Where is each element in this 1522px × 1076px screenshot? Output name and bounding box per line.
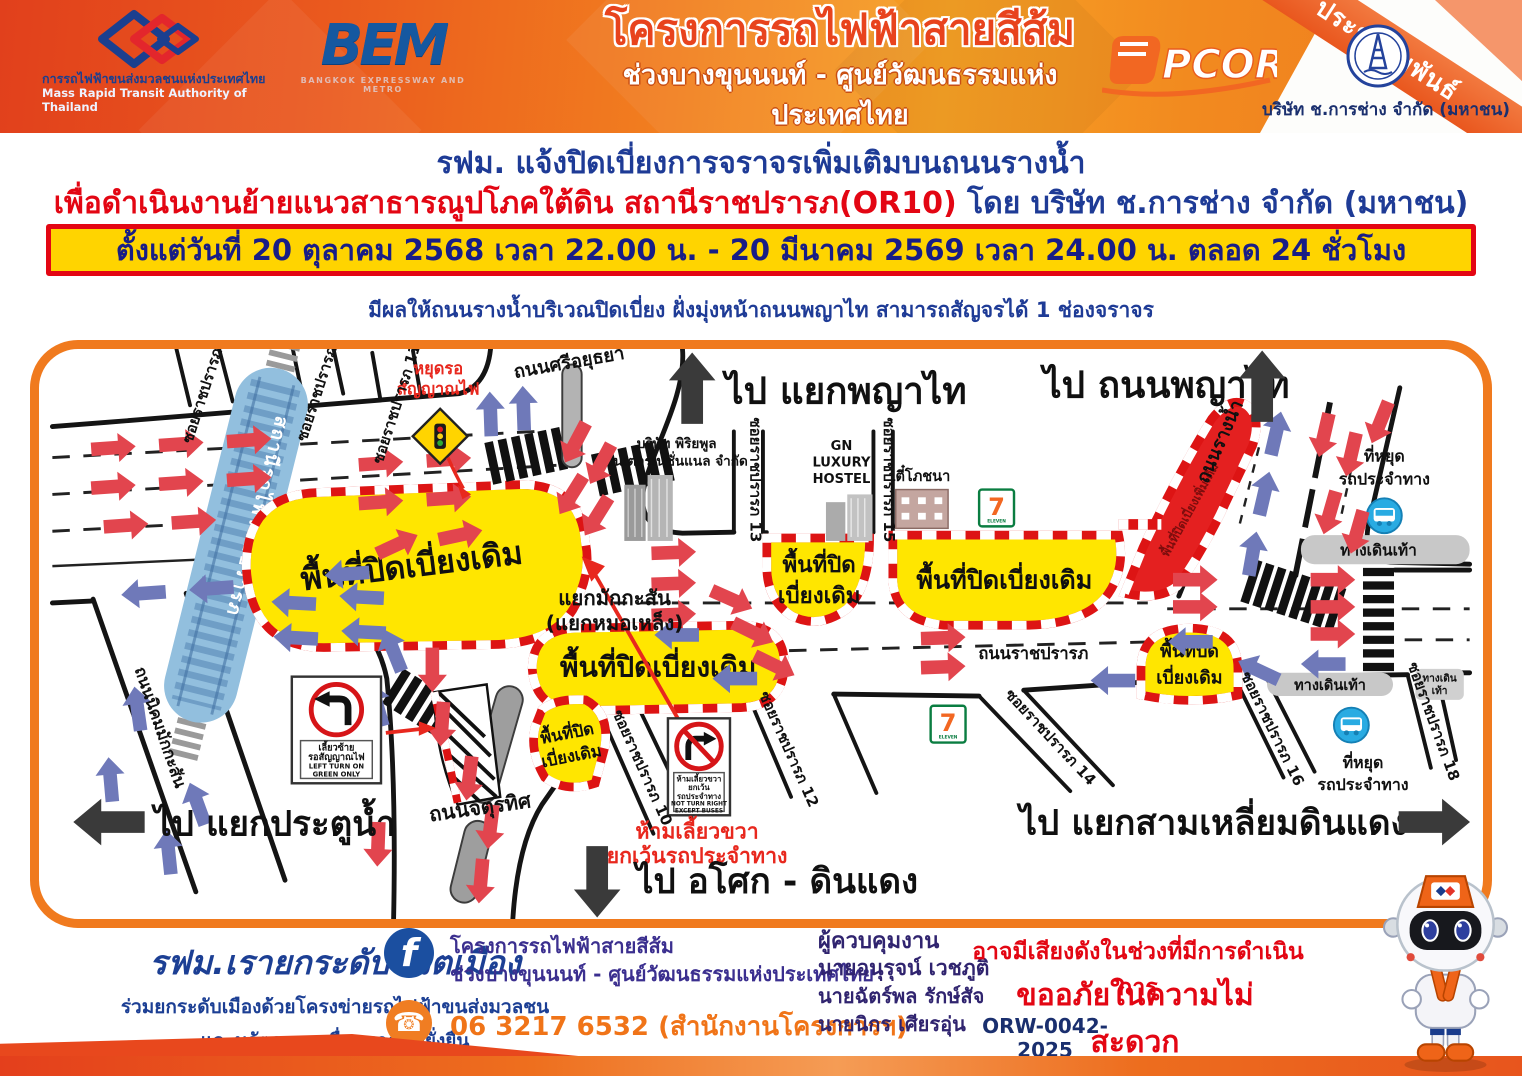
- bus-stop-icon: [1334, 708, 1369, 743]
- bem-logo-subtext: BANGKOK EXPRESSWAY AND METRO: [283, 76, 483, 94]
- bem-logo-text: BEM: [283, 18, 483, 74]
- facebook-icon: f: [384, 928, 434, 978]
- eleven-glyph: ELEVEN: [987, 519, 1006, 525]
- dir-pratunam: ไป แยกประตูน้ำ: [150, 798, 396, 846]
- dir-phayathai-junction: ไป แยกพญาไท: [721, 369, 966, 412]
- headline-line2: เพื่อดำเนินงานย้ายแนวสาธารณูปโภคใต้ดิน ส…: [0, 180, 1522, 227]
- project-title: โครงการรถไฟฟ้าสายสีส้ม: [560, 4, 1120, 56]
- bem-logo: BEM BANGKOK EXPRESSWAY AND METRO: [283, 18, 483, 94]
- supervisors-title: ผู้ควบคุมงาน: [818, 928, 989, 955]
- ck-logo-icon: [1346, 24, 1410, 88]
- no-right-turn-icon: [677, 724, 722, 769]
- mascot: [1378, 868, 1513, 1073]
- closure-label-3b: เบี่ยงเดิม: [778, 579, 860, 609]
- label-soi15: ซอยราชปรารภ 15: [880, 417, 898, 542]
- label-soi11: ซอยราชปรารภ 11: [369, 349, 425, 466]
- label-soi13: ซอยราชปรารภ 13: [746, 417, 764, 542]
- headline-line2-blue: โดย บริษัท ช.การช่าง จำกัด (มหาชน): [957, 186, 1469, 221]
- facebook-page-line2: ช่วงบางขุนนนท์ - ศูนย์วัฒนธรรมแห่งประเทศ…: [450, 958, 874, 990]
- building-piriyapol: [624, 475, 672, 541]
- no-right-text-en1: NOT TURN RIGHT: [671, 802, 727, 808]
- poster: การรถไฟฟ้าขนส่งมวลชนแห่งประเทศไทย Mass R…: [0, 0, 1522, 1076]
- sidewalk-label-2: ทางเดินเท้า: [1294, 677, 1366, 694]
- headline-line2-red: เพื่อดำเนินงานย้ายแนวสาธารณูปโภคใต้ดิน ส…: [54, 186, 957, 221]
- poi-gn-1: GN: [831, 439, 853, 454]
- mrta-name-th: การรถไฟฟ้าขนส่งมวลชนแห่งประเทศไทย: [42, 72, 272, 86]
- pcor-logo-icon: PCOR: [1102, 28, 1277, 102]
- no-right-text-en2: EXCEPT BUSES: [675, 808, 723, 814]
- no-right-text-2: ยกเว้น: [688, 782, 710, 792]
- seven-glyph: 7: [988, 493, 1005, 521]
- closure-label-5b: เบี่ยงเดิม: [1156, 664, 1222, 688]
- footer-band: [0, 1056, 1522, 1076]
- label-ratchaprarop: ถนนราชปรารภ: [978, 644, 1088, 663]
- pcor-logo-text: PCOR: [1162, 42, 1277, 88]
- pcor-logo: PCOR: [1102, 28, 1277, 106]
- seven-glyph: 7: [940, 709, 957, 737]
- ck-logo: [1346, 24, 1410, 92]
- seven-eleven-icon: 7 ELEVEN: [931, 706, 966, 743]
- poi-gn-2: LUXURY: [812, 455, 871, 470]
- supervisor-1: นายอนุรุจน์ เวชภูติ: [818, 955, 989, 982]
- poi-piriyapol-2: อินเตอร์เนชั่นแนล จำกัด: [606, 450, 748, 469]
- no-right-text-3: รถประจำทาง: [677, 792, 721, 801]
- dir-samliam-dindaeng: ไป แยกสามเหลี่ยมดินแดง: [1016, 798, 1408, 844]
- traffic-map: สถานีรถไฟราชปรารภ พื้นที่ปิดเบี่ยงเดิม พ…: [30, 340, 1492, 928]
- poi-piriyapol-1: บริษัท พิริยพูล: [637, 436, 717, 452]
- building-gn: [826, 494, 873, 541]
- poi-tee-pochana: ตี๋โภชนา: [895, 464, 950, 485]
- period-text: ตั้งแต่วันที่ 20 ตุลาคม 2568 เวลา 22.00 …: [116, 227, 1406, 273]
- header: การรถไฟฟ้าขนส่งมวลชนแห่งประเทศไทย Mass R…: [0, 0, 1522, 133]
- mrta-logo: การรถไฟฟ้าขนส่งมวลชนแห่งประเทศไทย Mass R…: [42, 6, 272, 114]
- eleven-glyph: ELEVEN: [939, 735, 958, 741]
- bus-stop-label-1b: รถประจำทาง: [1339, 470, 1430, 489]
- bus-stop-label-2a: ที่หยุด: [1343, 751, 1384, 773]
- dir-asok-dindaeng: ไป อโศก - ดินแดง: [632, 860, 918, 902]
- contractor-name: บริษัท ช.การช่าง จำกัด (มหาชน): [1258, 96, 1514, 123]
- left-turn-text-en2: GREEN ONLY: [313, 771, 361, 779]
- seven-eleven-icon: 7 ELEVEN: [979, 490, 1014, 527]
- left-turn-text-2: รอสัญญาณไฟ: [308, 751, 365, 763]
- supervisor-2: นายฉัตร์พล รักษ์สัจ: [818, 982, 989, 1010]
- bus-stop-icon: [1367, 498, 1402, 533]
- mrta-logo-icon: [64, 6, 234, 72]
- closure-label-3a: พื้นที่ปิด: [783, 547, 856, 578]
- mrta-name-en: Mass Rapid Transit Authority of Thailand: [42, 86, 272, 114]
- bus-stop-label-1a: ที่หยุด: [1364, 444, 1405, 466]
- effect-note: มีผลให้ถนนรางน้ำบริเวณปิดเบี่ยง ฝั่งมุ่ง…: [0, 294, 1522, 327]
- wait-signal-text-1: หยุดรอ: [413, 359, 463, 379]
- map-canvas: สถานีรถไฟราชปรารภ พื้นที่ปิดเบี่ยงเดิม พ…: [39, 349, 1483, 919]
- label-junction-2: (แยกหมอเหล็ง): [546, 610, 684, 635]
- project-subtitle: ช่วงบางขุนนนท์ - ศูนย์วัฒนธรรมแห่งประเทศ…: [560, 56, 1120, 133]
- project-title-block: โครงการรถไฟฟ้าสายสีส้ม ช่วงบางขุนนนท์ - …: [560, 4, 1120, 133]
- period-banner: ตั้งแต่วันที่ 20 ตุลาคม 2568 เวลา 22.00 …: [46, 224, 1476, 276]
- document-number: ORW-0042-2025: [955, 1014, 1135, 1062]
- bus-stop-label-2b: รถประจำทาง: [1317, 775, 1408, 794]
- no-right-note-1: ห้ามเลี้ยวขวา: [635, 815, 758, 845]
- label-junction-1: แยกมักกะสัน: [558, 586, 671, 610]
- no-right-text-1: ห้ามเลี้ยวขวา: [677, 772, 722, 783]
- poi-gn-3: HOSTEL: [813, 472, 871, 487]
- closure-label-4: พื้นที่ปิดเบี่ยงเดิม: [916, 560, 1092, 594]
- building-tee-pochana: [896, 490, 948, 529]
